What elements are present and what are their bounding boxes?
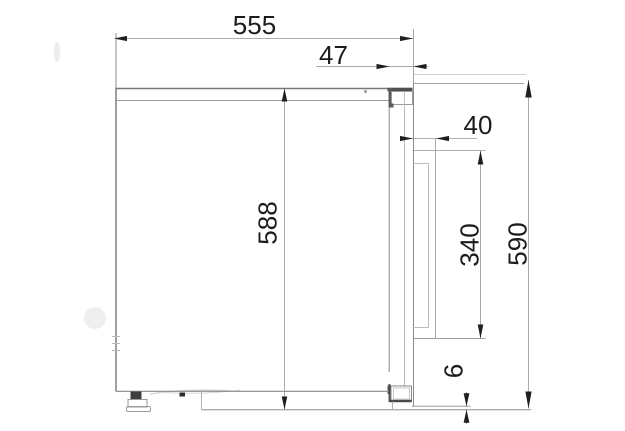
svg-text:340: 340 (455, 223, 485, 266)
svg-text:555: 555 (233, 10, 276, 40)
svg-text:47: 47 (319, 40, 348, 70)
svg-text:40: 40 (464, 110, 493, 140)
svg-text:588: 588 (253, 201, 283, 244)
svg-text:6: 6 (439, 364, 469, 378)
svg-text:590: 590 (503, 222, 533, 265)
